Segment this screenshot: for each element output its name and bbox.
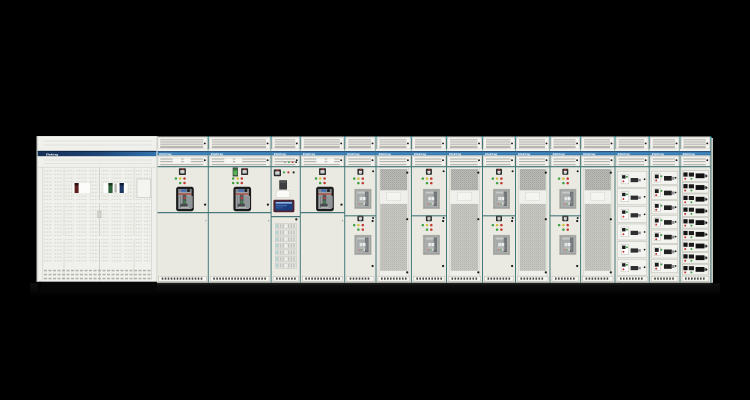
svg-text:Elektrag: Elektrag <box>159 152 171 156</box>
svg-text:Elektrag: Elektrag <box>683 152 695 156</box>
svg-text:Elektrag: Elektrag <box>449 152 461 156</box>
svg-text:Elektrag: Elektrag <box>46 152 58 156</box>
svg-text:Elektrag: Elektrag <box>303 152 315 156</box>
svg-text:Elektrag: Elektrag <box>583 152 595 156</box>
svg-text:Elektrag: Elektrag <box>414 152 426 156</box>
svg-text:Elektrag: Elektrag <box>485 152 497 156</box>
svg-text:Elektrag: Elektrag <box>211 152 223 156</box>
svg-text:Elektrag: Elektrag <box>518 152 530 156</box>
svg-text:Elektrag: Elektrag <box>347 152 359 156</box>
svg-text:Elektrag: Elektrag <box>274 152 286 156</box>
svg-text:Elektrag: Elektrag <box>652 152 664 156</box>
svg-text:Elektrag: Elektrag <box>379 152 391 156</box>
svg-text:Elektrag: Elektrag <box>553 152 565 156</box>
svg-text:Elektrag: Elektrag <box>618 152 630 156</box>
